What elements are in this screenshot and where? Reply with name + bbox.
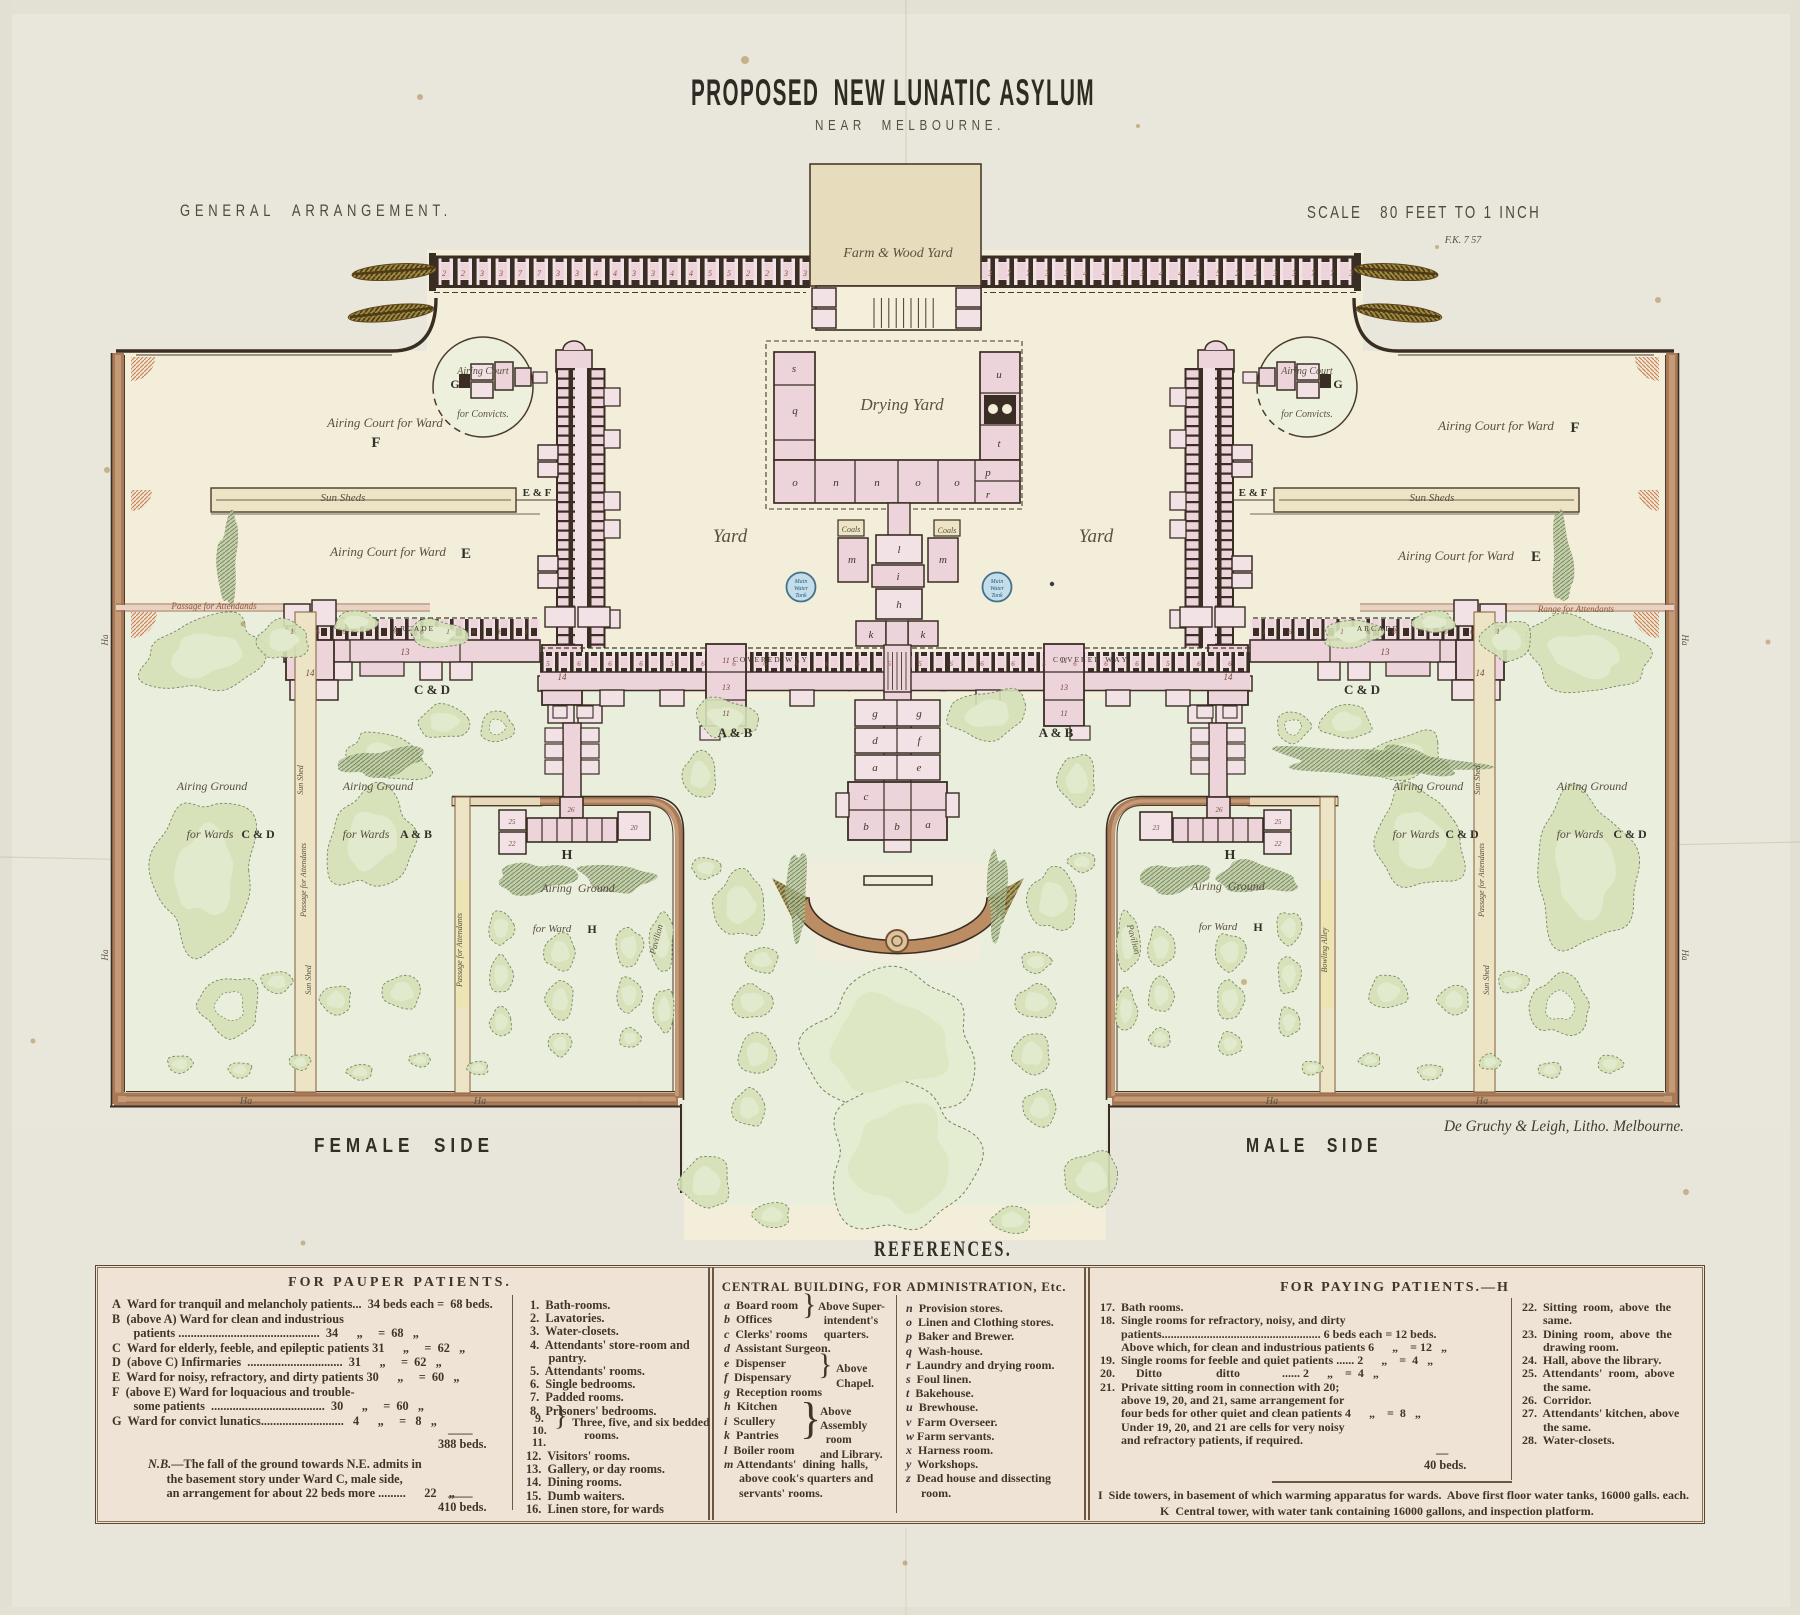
svg-text:6: 6	[1073, 660, 1077, 668]
svg-text:REFERENCES.: REFERENCES.	[874, 1236, 1012, 1261]
svg-text:De Gruchy & Leigh, Litho. Melb: De Gruchy & Leigh, Litho. Melbourne.	[1443, 1118, 1684, 1135]
svg-text:Ha: Ha	[1680, 949, 1690, 961]
svg-text:5: 5	[670, 660, 674, 668]
svg-text:C & D: C & D	[414, 682, 450, 697]
svg-text:Sun Shed: Sun Shed	[296, 764, 305, 795]
svg-text:6: 6	[825, 660, 829, 668]
svg-text:Sun Shed: Sun Shed	[304, 964, 313, 995]
svg-text:3: 3	[498, 269, 503, 278]
svg-text:Coals: Coals	[938, 526, 957, 535]
svg-text:o: o	[792, 477, 798, 489]
svg-text:Passage for Attendants: Passage for Attendants	[455, 913, 464, 988]
svg-text:C & D: C & D	[1344, 682, 1380, 697]
svg-text:H: H	[1253, 920, 1263, 934]
svg-text:for Wards: for Wards	[343, 827, 390, 841]
svg-text:Airing Ground: Airing Ground	[540, 881, 616, 895]
svg-text:4: 4	[1102, 269, 1106, 278]
svg-text:Water: Water	[794, 586, 809, 592]
svg-text:E: E	[461, 546, 471, 562]
svg-text:1: 1	[524, 628, 528, 636]
svg-text:1: 1	[446, 628, 450, 636]
svg-text:26: 26	[1216, 806, 1224, 814]
svg-text:6: 6	[1470, 628, 1474, 636]
svg-text:3: 3	[479, 269, 484, 278]
svg-text:4: 4	[1178, 269, 1182, 278]
svg-text:3: 3	[650, 269, 655, 278]
svg-text:2: 2	[746, 269, 750, 278]
svg-text:6: 6	[639, 660, 643, 668]
svg-text:o: o	[915, 477, 921, 489]
svg-text:b: b	[894, 821, 900, 833]
svg-text:a: a	[872, 762, 878, 774]
svg-text:3: 3	[555, 269, 560, 278]
svg-text:b: b	[863, 821, 869, 833]
svg-text:6: 6	[1314, 628, 1318, 636]
svg-text:6: 6	[732, 660, 736, 668]
svg-text:1: 1	[1262, 628, 1266, 636]
svg-text:3: 3	[631, 269, 636, 278]
svg-text:6: 6	[1135, 660, 1139, 668]
svg-text:for Convicts.: for Convicts.	[457, 409, 509, 420]
svg-text:Passage for Attendants: Passage for Attendants	[299, 843, 308, 918]
svg-text:4: 4	[613, 269, 617, 278]
svg-text:25: 25	[509, 818, 517, 826]
svg-text:FEMALE SIDE: FEMALE SIDE	[314, 1134, 494, 1157]
svg-text:m: m	[848, 554, 856, 566]
svg-text:n: n	[833, 477, 839, 489]
svg-text:Passage for Attendands: Passage for Attendands	[170, 601, 257, 611]
svg-text:l: l	[897, 544, 900, 556]
svg-text:H: H	[587, 922, 597, 936]
svg-text:3: 3	[1044, 269, 1049, 278]
svg-text:5: 5	[708, 269, 712, 278]
svg-text:6: 6	[1104, 660, 1108, 668]
svg-text:A & B: A & B	[1039, 725, 1074, 740]
svg-text:3: 3	[1291, 269, 1296, 278]
svg-text:F: F	[371, 435, 380, 451]
svg-text:Yard: Yard	[1079, 526, 1114, 547]
svg-text:2: 2	[1235, 269, 1239, 278]
svg-text:a: a	[925, 819, 931, 831]
svg-text:Bowling Alley: Bowling Alley	[1320, 927, 1329, 972]
svg-text:e: e	[917, 762, 922, 774]
svg-text:m: m	[939, 554, 947, 566]
svg-text:C & D: C & D	[1613, 827, 1647, 841]
svg-text:6: 6	[949, 660, 953, 668]
svg-text:1: 1	[1418, 628, 1422, 636]
svg-text:25: 25	[1275, 818, 1283, 826]
svg-text:GENERAL ARRANGEMENT.: GENERAL ARRANGEMENT.	[180, 202, 452, 220]
svg-text:13: 13	[722, 683, 730, 692]
svg-text:5: 5	[727, 269, 731, 278]
svg-text:6: 6	[856, 660, 860, 668]
svg-text:C & D: C & D	[1445, 827, 1479, 841]
svg-text:H: H	[562, 848, 573, 863]
svg-text:E & F: E & F	[523, 487, 552, 499]
svg-text:22: 22	[509, 840, 517, 848]
svg-text:A R C A D E: A R C A D E	[393, 624, 434, 633]
svg-text:2: 2	[765, 269, 769, 278]
svg-text:E: E	[1531, 549, 1541, 565]
svg-text:d: d	[872, 735, 878, 747]
svg-text:3: 3	[574, 269, 579, 278]
svg-text:23: 23	[1153, 824, 1161, 832]
svg-text:Airing Court for Ward: Airing Court for Ward	[326, 415, 443, 430]
svg-text:14: 14	[306, 668, 316, 678]
svg-text:for Ward: for Ward	[533, 923, 572, 935]
svg-text:Airing Ground: Airing Ground	[1190, 879, 1266, 893]
svg-text:p: p	[984, 467, 991, 479]
svg-text:Sun Sheds: Sun Sheds	[1410, 492, 1455, 504]
svg-text:F: F	[1570, 420, 1579, 436]
svg-text:Ha: Ha	[1475, 1096, 1488, 1107]
svg-text:11: 11	[1060, 656, 1067, 665]
svg-text:Ha: Ha	[473, 1096, 486, 1107]
svg-text:3: 3	[1139, 269, 1144, 278]
svg-text:6: 6	[1197, 660, 1201, 668]
svg-text:for Wards: for Wards	[187, 827, 234, 841]
svg-text:3: 3	[1272, 269, 1277, 278]
svg-text:3: 3	[802, 269, 807, 278]
svg-text:13: 13	[401, 647, 411, 657]
svg-text:1: 1	[290, 628, 294, 636]
svg-text:2: 2	[442, 269, 446, 278]
svg-text:6: 6	[498, 628, 502, 636]
svg-text:Sun Shed: Sun Shed	[1473, 764, 1482, 795]
svg-text:u: u	[996, 369, 1002, 381]
svg-text:Yard: Yard	[713, 526, 748, 547]
svg-text:6: 6	[1228, 660, 1232, 668]
svg-text:4: 4	[670, 269, 674, 278]
svg-text:q: q	[792, 405, 798, 417]
svg-text:Airing Ground: Airing Ground	[342, 779, 415, 793]
svg-text:5: 5	[1197, 269, 1201, 278]
svg-text:Ha: Ha	[100, 949, 110, 961]
svg-text:1: 1	[1340, 628, 1344, 636]
svg-text:A & B: A & B	[718, 725, 753, 740]
svg-text:SCALE 80 FEET TO 1 INCH: SCALE 80 FEET TO 1 INCH	[1307, 202, 1541, 222]
svg-text:4: 4	[689, 269, 693, 278]
svg-text:6: 6	[1011, 660, 1015, 668]
svg-text:G: G	[450, 377, 459, 391]
svg-text:13: 13	[1381, 647, 1391, 657]
svg-text:for Convicts.: for Convicts.	[1281, 409, 1333, 420]
svg-text:6: 6	[887, 660, 891, 668]
svg-text:6: 6	[420, 628, 424, 636]
svg-text:4: 4	[1159, 269, 1163, 278]
svg-text:Airing Ground: Airing Ground	[1392, 779, 1465, 793]
svg-text:5: 5	[1216, 269, 1220, 278]
svg-text:6: 6	[1444, 628, 1448, 636]
svg-text:Main: Main	[990, 579, 1004, 585]
svg-text:6: 6	[577, 660, 581, 668]
svg-text:2: 2	[461, 269, 465, 278]
svg-text:1: 1	[1496, 628, 1500, 636]
svg-text:i: i	[896, 571, 899, 583]
svg-text:Range for Attendants: Range for Attendants	[1537, 604, 1615, 614]
svg-text:3: 3	[987, 269, 992, 278]
svg-text:6: 6	[701, 660, 705, 668]
svg-text:6: 6	[980, 660, 984, 668]
svg-text:g: g	[916, 708, 922, 720]
svg-text:o: o	[954, 477, 960, 489]
svg-text:E & F: E & F	[1239, 487, 1268, 499]
svg-text:NEAR MELBOURNE.: NEAR MELBOURNE.	[815, 117, 1005, 134]
svg-text:3: 3	[783, 269, 788, 278]
svg-text:Farm & Wood Yard: Farm & Wood Yard	[842, 246, 953, 261]
svg-text:Airing Ground: Airing Ground	[176, 779, 249, 793]
svg-text:3: 3	[1120, 269, 1125, 278]
svg-text:n: n	[874, 477, 880, 489]
svg-text:6: 6	[608, 660, 612, 668]
svg-text:Airing Court for Ward: Airing Court for Ward	[1437, 418, 1554, 433]
svg-text:1: 1	[368, 628, 372, 636]
svg-text:Ha: Ha	[100, 634, 110, 646]
svg-text:5: 5	[794, 660, 798, 668]
svg-text:6: 6	[394, 628, 398, 636]
svg-text:6: 6	[1288, 628, 1292, 636]
svg-text:Drying Yard: Drying Yard	[859, 395, 944, 414]
svg-text:6: 6	[472, 628, 476, 636]
svg-text:r: r	[986, 489, 991, 501]
svg-text:26: 26	[568, 806, 576, 814]
svg-text:Main: Main	[794, 579, 808, 585]
svg-text:Sun Sheds: Sun Sheds	[321, 492, 366, 504]
svg-text:for Ward: for Ward	[1199, 921, 1238, 933]
svg-text:g: g	[872, 708, 878, 720]
svg-text:Airing Ground: Airing Ground	[1556, 779, 1629, 793]
svg-text:Passage for Attendants: Passage for Attendants	[1477, 843, 1486, 918]
svg-text:2: 2	[1254, 269, 1258, 278]
svg-text:14: 14	[1224, 672, 1234, 682]
svg-text:Tank: Tank	[991, 593, 1003, 599]
svg-text:h: h	[896, 599, 902, 611]
svg-text:3: 3	[1348, 269, 1353, 278]
svg-text:MALE SIDE: MALE SIDE	[1246, 1134, 1382, 1157]
svg-text:4: 4	[1083, 269, 1087, 278]
svg-text:for Wards: for Wards	[1557, 827, 1604, 841]
svg-text:Airing Court for Ward: Airing Court for Ward	[1397, 548, 1514, 563]
svg-text:6: 6	[342, 628, 346, 636]
svg-text:H: H	[1225, 848, 1236, 863]
svg-text:13: 13	[1060, 683, 1068, 692]
svg-text:Ha: Ha	[239, 1096, 252, 1107]
svg-text:14: 14	[1476, 668, 1486, 678]
svg-text:11: 11	[722, 709, 729, 718]
svg-text:22: 22	[1275, 840, 1283, 848]
svg-text:Ha: Ha	[1265, 1096, 1278, 1107]
svg-text:Tank: Tank	[795, 593, 807, 599]
svg-text:6: 6	[316, 628, 320, 636]
svg-text:11: 11	[1060, 709, 1067, 718]
svg-text:A & B: A & B	[400, 827, 432, 841]
svg-text:for Wards: for Wards	[1393, 827, 1440, 841]
svg-text:Ha: Ha	[1680, 634, 1690, 646]
svg-text:14: 14	[558, 672, 568, 682]
svg-text:5: 5	[1042, 660, 1046, 668]
svg-text:F.K. 7 57: F.K. 7 57	[1444, 235, 1482, 246]
svg-text:6: 6	[1392, 628, 1396, 636]
svg-text:3: 3	[1063, 269, 1068, 278]
svg-text:Airing Court for Ward: Airing Court for Ward	[329, 544, 446, 559]
svg-text:5: 5	[546, 660, 550, 668]
svg-text:Airing Court: Airing Court	[1280, 366, 1333, 377]
svg-text:PROPOSED NEW LUNATIC ASYLUM: PROPOSED NEW LUNATIC ASYLUM	[691, 72, 1095, 113]
svg-text:11: 11	[722, 656, 729, 665]
svg-text:s: s	[792, 363, 796, 375]
svg-text:6: 6	[1366, 628, 1370, 636]
svg-text:20: 20	[631, 824, 639, 832]
svg-text:C & D: C & D	[241, 827, 275, 841]
svg-text:Airing Court: Airing Court	[456, 366, 509, 377]
svg-text:5: 5	[1166, 660, 1170, 668]
svg-text:Water: Water	[990, 586, 1005, 592]
svg-text:Sun Shed: Sun Shed	[1482, 964, 1491, 995]
svg-text:5: 5	[918, 660, 922, 668]
svg-text:G: G	[1333, 377, 1342, 391]
svg-text:6: 6	[763, 660, 767, 668]
svg-text:Coals: Coals	[842, 525, 861, 534]
svg-text:c: c	[864, 791, 869, 803]
svg-text:4: 4	[594, 269, 598, 278]
